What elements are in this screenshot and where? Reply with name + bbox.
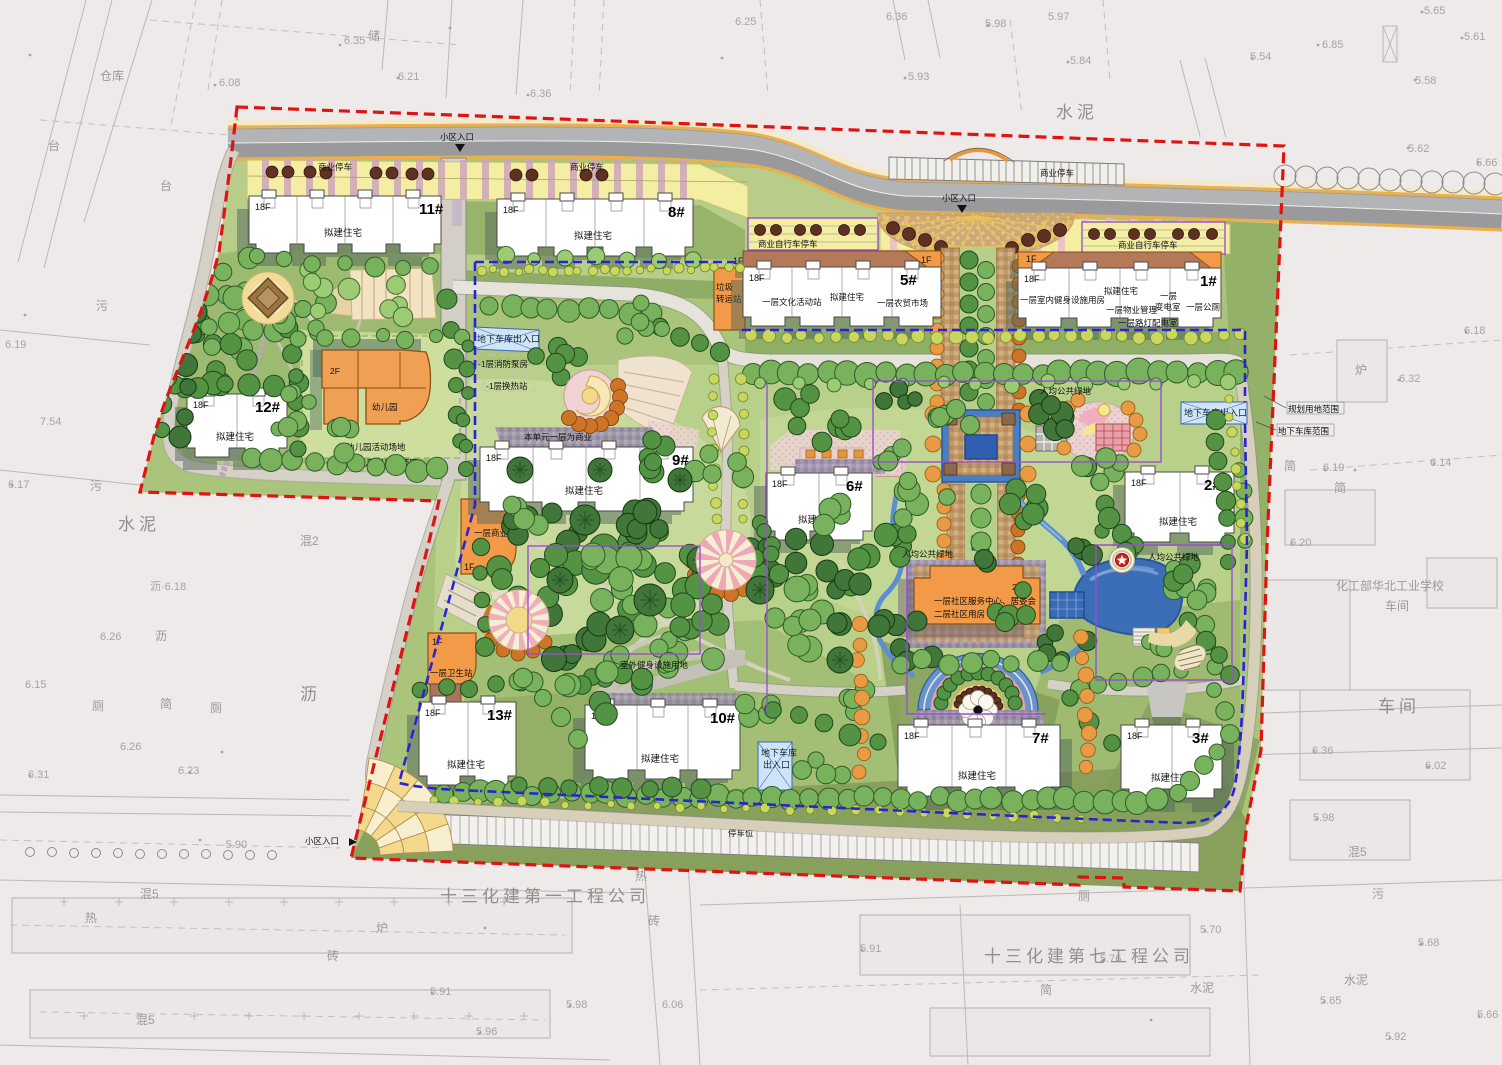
svg-text:6.14: 6.14	[1430, 457, 1451, 469]
svg-text:5.98: 5.98	[1313, 812, 1334, 824]
svg-text:砖: 砖	[648, 913, 660, 928]
svg-text:垃圾: 垃圾	[716, 282, 734, 292]
svg-text:一层文化活动站: 一层文化活动站	[762, 297, 822, 307]
svg-text:炉: 炉	[376, 921, 388, 935]
svg-text:7.54: 7.54	[40, 416, 61, 428]
svg-text:18F: 18F	[193, 400, 209, 410]
svg-text:8#: 8#	[668, 204, 685, 221]
svg-text:简: 简	[1334, 481, 1346, 495]
svg-text:热: 热	[635, 869, 647, 883]
svg-text:5.91: 5.91	[860, 943, 881, 955]
svg-text:拟建住宅: 拟建住宅	[216, 431, 254, 443]
svg-text:商业自行车停车: 商业自行车停车	[1118, 240, 1178, 250]
svg-text:水泥: 水泥	[1344, 973, 1368, 987]
svg-text:幼儿园活动场地: 幼儿园活动场地	[346, 442, 406, 452]
svg-text:热: 热	[85, 911, 97, 925]
svg-text:·5.90: ·5.90	[222, 839, 247, 851]
svg-text:车间: 车间	[1378, 697, 1420, 716]
svg-text:水泥: 水泥	[1190, 981, 1214, 995]
svg-text:18F: 18F	[1127, 731, 1143, 741]
svg-text:5.66: 5.66	[1476, 157, 1497, 169]
svg-text:水泥: 水泥	[118, 515, 160, 534]
svg-text:污: 污	[96, 299, 108, 313]
svg-text:6.20: 6.20	[1290, 537, 1311, 549]
svg-text:18F: 18F	[425, 708, 441, 718]
svg-text:18F: 18F	[772, 479, 788, 489]
svg-text:拟建住宅: 拟建住宅	[641, 753, 679, 765]
svg-text:5.98: 5.98	[985, 18, 1006, 30]
svg-text:商业停车: 商业停车	[318, 162, 352, 172]
svg-text:室外健身设施用地: 室外健身设施用地	[620, 660, 689, 670]
svg-text:拟建住宅: 拟建住宅	[958, 770, 996, 782]
svg-text:5.97: 5.97	[1048, 11, 1069, 23]
svg-text:人均公共绿地: 人均公共绿地	[1040, 386, 1092, 396]
svg-text:地下车库: 地下车库	[761, 747, 797, 758]
svg-text:拟建住宅: 拟建住宅	[324, 227, 362, 239]
svg-text:污: 污	[90, 479, 102, 493]
svg-text:5.98: 5.98	[566, 999, 587, 1011]
svg-text:5.84: 5.84	[1070, 55, 1091, 67]
svg-text:小区入口: 小区入口	[440, 132, 474, 142]
svg-text:简: 简	[1284, 459, 1296, 473]
svg-text:车间: 车间	[1385, 598, 1409, 613]
svg-text:11#: 11#	[419, 201, 444, 218]
svg-text:一层物业管理: 一层物业管理	[1106, 305, 1158, 315]
svg-text:5.54: 5.54	[1250, 51, 1271, 63]
svg-text:污: 污	[1372, 887, 1384, 901]
svg-text:18F: 18F	[1024, 274, 1040, 284]
svg-text:储: 储	[368, 28, 380, 43]
svg-text:6.18: 6.18	[1464, 325, 1485, 337]
svg-text:5.58: 5.58	[1415, 75, 1436, 87]
svg-text:厕: 厕	[210, 701, 222, 715]
svg-text:沥·6.18: 沥·6.18	[150, 580, 186, 593]
svg-text:二层社区用房: 二层社区用房	[934, 609, 985, 619]
svg-text:-1层消防泵房: -1层消防泵房	[478, 359, 528, 369]
svg-text:拟建住宅: 拟建住宅	[565, 485, 603, 497]
svg-text:厕: 厕	[92, 699, 104, 713]
svg-text:6.17: 6.17	[8, 479, 29, 491]
svg-text:6.25: 6.25	[735, 16, 756, 28]
svg-text:商业停车: 商业停车	[1040, 168, 1074, 178]
svg-text:拟建住宅: 拟建住宅	[1104, 286, 1138, 296]
svg-text:台: 台	[160, 178, 172, 193]
svg-text:5.65: 5.65	[1424, 5, 1445, 17]
svg-text:5.91: 5.91	[430, 986, 451, 998]
svg-text:商业自行车停车: 商业自行车停车	[758, 239, 818, 249]
svg-text:十三化建第七工程公司: 十三化建第七工程公司	[984, 947, 1194, 966]
svg-text:6.15: 6.15	[25, 679, 46, 691]
svg-text:6.23: 6.23	[178, 765, 199, 777]
svg-text:6.35: 6.35	[344, 35, 365, 47]
svg-text:小区入口: 小区入口	[942, 193, 976, 203]
svg-text:5.65: 5.65	[1320, 995, 1341, 1007]
svg-text:18F: 18F	[255, 202, 271, 212]
svg-text:6.36: 6.36	[1312, 745, 1333, 757]
svg-text:混5: 混5	[140, 887, 159, 901]
svg-text:沥: 沥	[300, 685, 321, 704]
svg-text:地下车库出入口: 地下车库出入口	[477, 333, 540, 344]
svg-text:拟建住宅: 拟建住宅	[574, 230, 612, 242]
svg-text:简: 简	[1040, 983, 1052, 997]
svg-text:变电室: 变电室	[1155, 302, 1181, 312]
svg-text:人均公共绿地: 人均公共绿地	[1148, 552, 1200, 562]
svg-text:仓库: 仓库	[100, 68, 124, 83]
svg-text:6.31: 6.31	[28, 769, 49, 781]
svg-text:一层室内健身设施用房: 一层室内健身设施用房	[1020, 295, 1105, 305]
svg-text:5.96: 5.96	[476, 1026, 497, 1038]
svg-text:18F: 18F	[503, 205, 519, 215]
svg-text:6.36: 6.36	[886, 11, 907, 23]
svg-text:6.85: 6.85	[1322, 39, 1343, 51]
svg-text:炉: 炉	[1355, 363, 1367, 377]
svg-text:5#: 5#	[900, 272, 917, 289]
svg-text:一层公厕: 一层公厕	[1186, 302, 1221, 312]
svg-text:一层: 一层	[1160, 291, 1177, 301]
svg-text:6.26: 6.26	[100, 631, 121, 643]
svg-text:商业停车: 商业停车	[570, 162, 604, 172]
svg-text:一层农贸市场: 一层农贸市场	[877, 298, 928, 308]
svg-text:拟建住宅: 拟建住宅	[447, 759, 485, 771]
svg-text:6#: 6#	[846, 478, 863, 495]
svg-text:十三化建第一工程公司: 十三化建第一工程公司	[440, 887, 650, 906]
svg-text:厕: 厕	[1078, 889, 1090, 903]
svg-text:台: 台	[48, 138, 60, 153]
svg-text:混5: 混5	[1348, 845, 1367, 859]
svg-text:5.93: 5.93	[908, 71, 929, 83]
svg-text:沥: 沥	[155, 629, 167, 643]
svg-text:-1层换热站: -1层换热站	[486, 381, 528, 391]
svg-text:6.06: 6.06	[662, 999, 683, 1011]
svg-text:一层卫生站: 一层卫生站	[430, 668, 473, 678]
svg-text:小区入口: 小区入口	[305, 836, 339, 846]
svg-text:5.66: 5.66	[1477, 1009, 1498, 1021]
svg-text:10#: 10#	[710, 710, 736, 727]
svg-text:5.62: 5.62	[1408, 143, 1429, 155]
svg-text:一层路灯配电室: 一层路灯配电室	[1118, 318, 1178, 328]
svg-text:拟建住宅: 拟建住宅	[1159, 516, 1197, 528]
svg-text:18F: 18F	[904, 731, 920, 741]
svg-text:18F: 18F	[749, 273, 765, 283]
svg-text:1#: 1#	[1200, 273, 1217, 290]
svg-text:6.02: 6.02	[1425, 760, 1446, 772]
svg-text:人均公共绿地: 人均公共绿地	[902, 549, 954, 559]
svg-text:化工部华北工业学校: 化工部华北工业学校	[1336, 578, 1444, 593]
svg-text:5.68: 5.68	[1418, 937, 1439, 949]
svg-text:1F: 1F	[921, 255, 932, 265]
svg-text:12#: 12#	[255, 399, 281, 416]
svg-text:5.70: 5.70	[1200, 924, 1221, 936]
svg-text:水泥: 水泥	[1056, 103, 1098, 122]
svg-text:6.36: 6.36	[530, 88, 551, 100]
svg-text:18F: 18F	[486, 453, 502, 463]
svg-text:混2: 混2	[300, 534, 319, 548]
svg-text:幼儿园: 幼儿园	[372, 402, 398, 412]
svg-text:规划用地范围: 规划用地范围	[1288, 404, 1339, 414]
svg-text:5.61: 5.61	[1464, 31, 1485, 43]
svg-text:拟建住宅: 拟建住宅	[830, 292, 864, 302]
svg-text:3#: 3#	[1192, 730, 1209, 747]
svg-text:出入口: 出入口	[763, 759, 790, 770]
svg-text:6.21: 6.21	[398, 71, 419, 83]
svg-text:7#: 7#	[1032, 730, 1049, 747]
svg-text:简: 简	[160, 697, 172, 711]
svg-text:6.26: 6.26	[120, 741, 141, 753]
svg-text:砖: 砖	[327, 948, 339, 963]
svg-text:地下车库范围: 地下车库范围	[1278, 426, 1329, 436]
svg-text:6.32: 6.32	[1399, 373, 1420, 385]
svg-text:13#: 13#	[487, 707, 513, 724]
svg-text:6.08: 6.08	[219, 77, 240, 89]
svg-text:6.19: 6.19	[1323, 462, 1344, 474]
svg-text:18F: 18F	[1131, 478, 1147, 488]
svg-text:5.92: 5.92	[1385, 1031, 1406, 1043]
svg-text:6.19: 6.19	[5, 339, 26, 351]
svg-text:2F: 2F	[330, 366, 340, 376]
